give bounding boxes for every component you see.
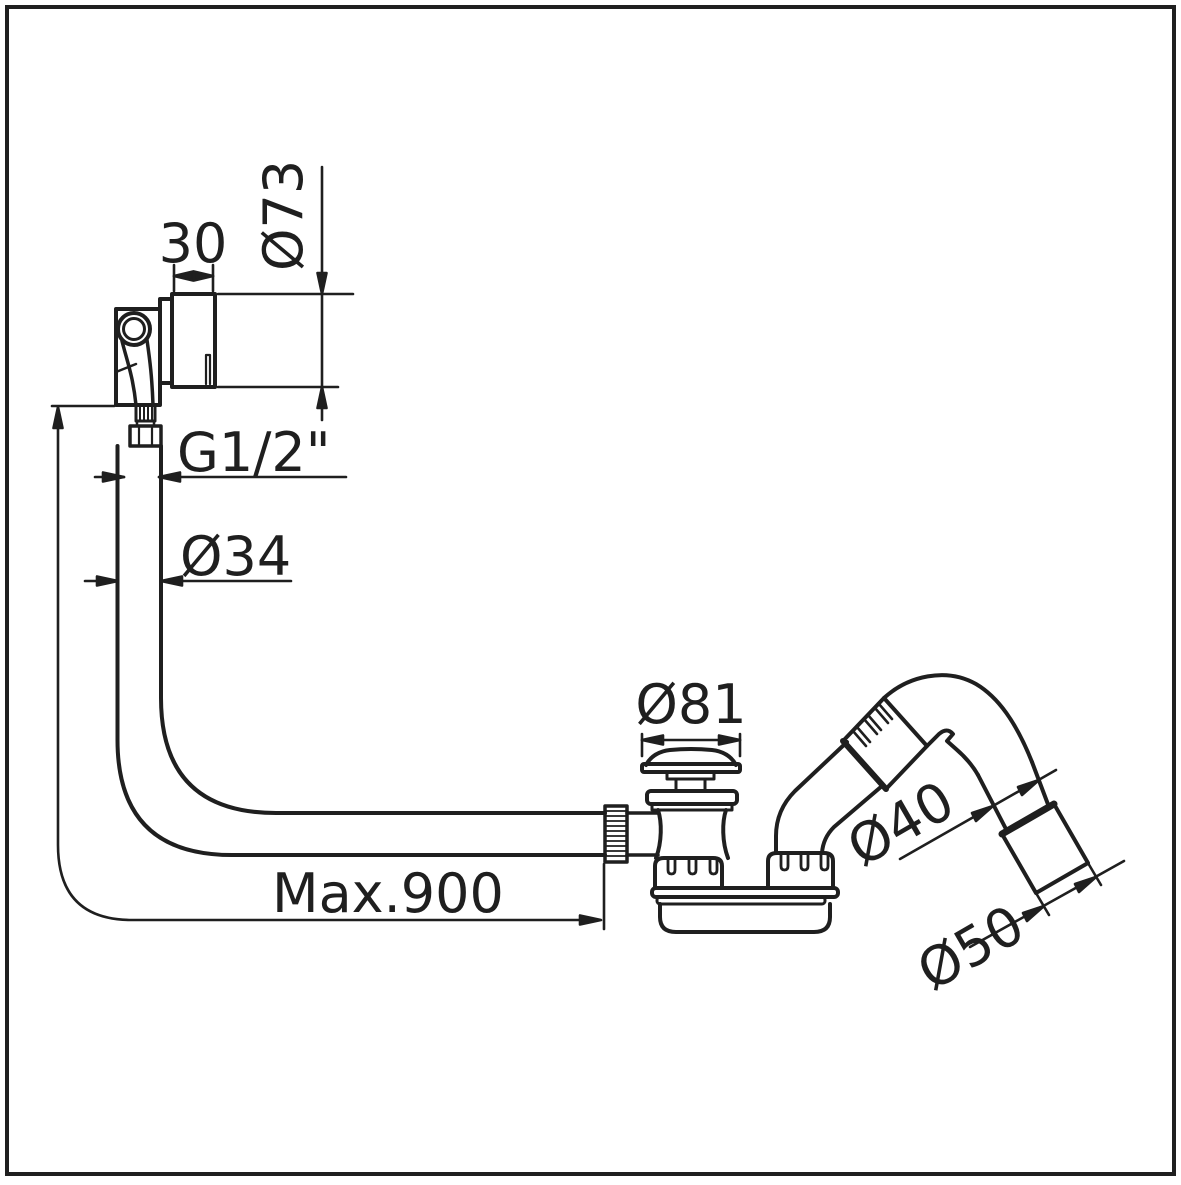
label-hose-diameter: Ø34: [180, 525, 291, 588]
technical-drawing-page: 30 Ø73 G1/2" Ø34 Ø81 Ø40 Ø50 Max.900: [0, 0, 1181, 1181]
dimension-labels: 30 Ø73 G1/2" Ø34 Ø81 Ø40 Ø50 Max.900: [159, 160, 1035, 1003]
waste-trap-assembly: [605, 749, 838, 932]
knurled-hose-connector: [605, 806, 627, 862]
waste-body: [656, 810, 661, 858]
waste-top-flange: [647, 791, 737, 804]
label-outlet-socket-diameter: Ø50: [907, 893, 1035, 1003]
outlet-socket: [1002, 804, 1054, 834]
label-overflow-depth: 30: [159, 212, 228, 275]
union-nut: [843, 741, 886, 789]
overflow-connection-nut: [130, 426, 161, 446]
label-outlet-pipe-diameter: Ø40: [837, 769, 965, 879]
overflow-slot: [206, 355, 210, 384]
label-overflow-diameter: Ø73: [252, 160, 315, 271]
label-plug-diameter: Ø81: [635, 673, 746, 736]
overflow-face-cylinder: [172, 294, 215, 387]
drawing-border-frame: [7, 7, 1174, 1174]
label-hose-max-length: Max.900: [272, 862, 504, 925]
overflow-hose: [118, 446, 606, 855]
trap-bottom-cup: [660, 904, 830, 932]
label-overflow-thread: G1/2": [177, 421, 331, 484]
bath-waste-technical-drawing: 30 Ø73 G1/2" Ø34 Ø81 Ø40 Ø50 Max.900: [0, 0, 1181, 1181]
dimension-hose-length: [52, 406, 604, 929]
